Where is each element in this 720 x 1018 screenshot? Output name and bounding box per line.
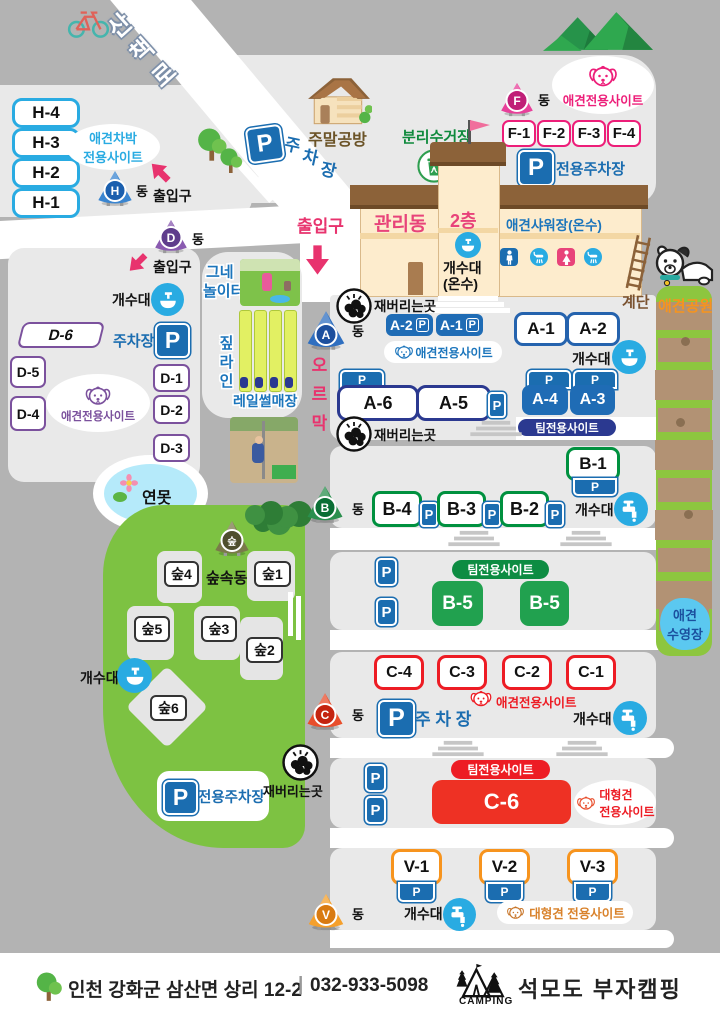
site-box-c4: C-4 <box>374 655 424 690</box>
forest-dong-letter: 숲 <box>221 529 244 552</box>
d-sink-label: 개수대 <box>112 290 151 310</box>
main-entrance-label: 출입구 <box>297 212 344 237</box>
site-box-forest4: 숲4 <box>164 561 199 587</box>
b-dong-letter: B <box>314 496 337 519</box>
site-box-f1: F-1 <box>502 120 536 147</box>
building-door <box>408 262 423 295</box>
b-dong-label: 동 <box>352 499 364 518</box>
site-box-f2: F-2 <box>537 120 571 147</box>
f-type-oval: 애견전용사이트 <box>552 56 654 114</box>
d-dong-label: 동 <box>192 229 204 248</box>
parking-tab-b1: P <box>573 478 617 496</box>
v-dong-letter: V <box>315 903 338 926</box>
a-dong-label: 동 <box>352 321 364 340</box>
shower-icon <box>530 248 548 266</box>
site-box-a5: A-5 <box>416 385 491 421</box>
dogpark-dirt-spot <box>684 510 693 519</box>
v-largedog-pill: 대형견 전용사이트 <box>497 901 633 924</box>
parking-tab-v2: P <box>486 882 523 902</box>
c-parking-label: 주 차 장 <box>415 705 471 730</box>
flag-icon <box>470 120 490 132</box>
a-type-pill: 애견전용사이트 <box>384 341 502 363</box>
parking-icon-c6b: P <box>365 796 386 824</box>
a-team-pill: 팀전용사이트 <box>518 419 616 436</box>
parking-tab-v1: P <box>398 882 435 902</box>
h-dong-letter: H <box>104 179 127 202</box>
site-box-d4: D-4 <box>10 396 46 431</box>
site-label: A-3 <box>580 391 606 409</box>
dog-character-icon <box>652 243 716 291</box>
a-type-label: 애견전용사이트 <box>415 344 492 361</box>
restroom-male-icon <box>500 248 518 266</box>
b-team-pill: 팀전용사이트 <box>452 560 549 579</box>
dog-pool-line2: 수영장 <box>667 624 703 643</box>
c-dong-label: 동 <box>352 705 364 724</box>
parking-icon-b5a: P <box>376 558 397 586</box>
stairs-label: 계단 <box>622 291 650 312</box>
rail-sled-cart <box>270 377 278 388</box>
uphill-label: 오르막 <box>305 356 330 443</box>
dog-icon <box>393 343 415 361</box>
parking-mini: P <box>466 318 479 332</box>
a-dong-letter: A <box>315 323 338 346</box>
sink-icon <box>455 232 481 258</box>
ash-disposal-label: 재버리는곳 <box>263 781 323 800</box>
forest-dong-name: 숲속동 <box>206 567 247 588</box>
forest-sink-label: 개수대 <box>80 668 119 688</box>
rail-sled-cart <box>255 377 263 388</box>
parking-icon-forest: P <box>163 780 198 815</box>
parking-mini: P <box>416 318 429 332</box>
stairs-graphic <box>470 419 522 438</box>
dog-icon <box>83 383 113 408</box>
workshop-house-icon <box>306 76 372 128</box>
roadside-tree-icon <box>218 146 244 176</box>
photo-mat <box>272 465 296 479</box>
d-dong-letter: D <box>160 226 183 249</box>
parking-icon-f: P <box>518 150 554 186</box>
site-label: A-1 <box>440 317 463 333</box>
h-dong-label: 동 <box>136 181 148 200</box>
photo-swing-playground <box>240 259 300 306</box>
parking-icon-c: P <box>378 700 415 737</box>
main-entrance-arrow-icon <box>305 240 330 280</box>
h-entrance-label: 출입구 <box>153 186 192 206</box>
v-sink-label: 개수대 <box>404 904 443 924</box>
camping-logo-text: CAMPING <box>459 996 513 1007</box>
road-band-b5 <box>330 630 674 650</box>
a-dong-marker: A <box>304 310 348 351</box>
f-parking-label: 전용주차장 <box>556 158 625 179</box>
c6-largedog-oval: 대형견 전용사이트 <box>574 780 656 825</box>
site-label: B-5 <box>442 593 473 615</box>
shower-icon <box>584 248 602 266</box>
a-sink-label: 개수대 <box>572 349 611 369</box>
site-box-d1: D-1 <box>153 364 190 392</box>
site-box-a2-small: A-2 P <box>386 314 433 336</box>
f-dong-letter: F <box>506 89 529 112</box>
photo-pool <box>270 295 290 303</box>
site-box-d2: D-2 <box>153 395 190 424</box>
footer-address: 인천 강화군 삼산면 상리 12-2 <box>68 975 302 1002</box>
ash-disposal-label: 재버리는곳 <box>374 295 436 315</box>
d-dong-marker: D <box>152 219 190 254</box>
building-steps <box>432 302 504 307</box>
faucet-icon <box>443 898 476 931</box>
site-box-c6: C-6 <box>432 780 571 824</box>
b-dong-marker: B <box>304 485 346 524</box>
c6-largedog-line2: 전용사이트 <box>599 803 654 820</box>
footer-tree-icon <box>34 970 64 1004</box>
parking-icon-a5: P <box>488 392 506 418</box>
pond-label: 연못 <box>142 484 171 508</box>
site-box-b3: B-3 <box>437 491 486 527</box>
photo-sky <box>240 259 300 271</box>
dog-icon <box>586 62 620 90</box>
parking-tab-v3: P <box>574 882 611 902</box>
site-label: A-2 <box>390 317 413 333</box>
lilypad-icon <box>113 492 127 502</box>
road-band-c6 <box>330 828 674 848</box>
site-box-b1: B-1 <box>566 447 620 481</box>
b-sink-label: 개수대 <box>575 500 614 520</box>
site-box-d6: D-6 <box>17 322 105 348</box>
ash-disposal-icon <box>282 744 319 781</box>
forest-parking-label: 전용주차장 <box>198 786 265 807</box>
site-label: A-4 <box>532 391 558 409</box>
site-label: B-5 <box>529 593 560 615</box>
site-box-v1: V-1 <box>391 849 442 885</box>
road-band-b <box>330 528 674 550</box>
parking-icon-b3: P <box>483 502 501 527</box>
forest-rail <box>296 596 301 640</box>
site-box-a3: A-3 <box>570 385 615 415</box>
d-type-oval: 애견전용사이트 <box>46 374 150 432</box>
sink-icon <box>117 658 152 693</box>
dog-icon <box>505 904 526 921</box>
dog-icon <box>575 794 597 812</box>
f-type-label: 애견전용사이트 <box>563 90 644 109</box>
forest-dong-marker: 숲 <box>212 520 252 557</box>
photo-zipline <box>230 417 298 483</box>
stairs-graphic <box>448 529 500 548</box>
flower-icon <box>120 474 138 492</box>
site-box-forest3: 숲3 <box>201 616 237 642</box>
d-type-label: 애견전용사이트 <box>61 408 135 424</box>
site-label: C-6 <box>484 789 519 815</box>
parking-icon-c6a: P <box>365 764 386 792</box>
building-name: 관리동 <box>374 209 426 236</box>
building-steps <box>438 296 498 301</box>
site-box-f3: F-3 <box>572 120 606 147</box>
road-band-c <box>330 738 674 758</box>
stairs-graphic <box>556 739 608 758</box>
site-box-forest5: 숲5 <box>134 616 170 642</box>
footer-phone: 032-933-5098 <box>310 975 428 997</box>
stairs-graphic <box>560 529 612 548</box>
parking-icon-b4: P <box>420 502 438 527</box>
footer-site-name: 석모도 부자캠핑 <box>518 972 682 1004</box>
parking-icon-top: P <box>245 124 286 165</box>
site-box-c3: C-3 <box>437 655 487 690</box>
swing-label-line1: 그네 <box>206 261 234 282</box>
rail-sled-cart <box>240 377 248 388</box>
parking-icon-b5b: P <box>376 598 397 626</box>
c-type-label: 애견전용사이트 <box>496 692 577 711</box>
building-sink-line2: (온수) <box>443 274 478 294</box>
building-shower-label: 애견샤워장(온수) <box>506 214 602 234</box>
site-box-b5-left: B-5 <box>432 581 483 626</box>
c-team-pill: 팀전용사이트 <box>451 760 550 779</box>
parking-icon-b2: P <box>546 502 564 527</box>
swing-label-line2: 놀이터 <box>203 280 244 301</box>
h-type-line2: 전용사이트 <box>83 147 143 166</box>
site-box-h1: H-1 <box>12 188 80 218</box>
sink-icon <box>612 340 646 374</box>
h-type-oval: 애견차박 전용사이트 <box>66 124 160 170</box>
site-box-b4: B-4 <box>372 491 422 527</box>
building-roof-right <box>488 185 648 209</box>
faucet-icon <box>613 701 647 735</box>
c-sink-label: 개수대 <box>573 709 612 729</box>
photo-kid <box>252 443 264 463</box>
parking-icon-d: P <box>155 323 190 358</box>
c6-largedog-line1: 대형견 <box>599 786 632 803</box>
dogpark-dirt-spot <box>681 337 690 346</box>
site-box-forest2: 숲2 <box>246 637 283 663</box>
v-largedog-label: 대형견 전용사이트 <box>529 903 624 922</box>
camping-logo-icon <box>456 962 510 1000</box>
zipline-label: 짚라인 <box>215 335 236 392</box>
site-box-d3: D-3 <box>153 434 190 462</box>
mountains-icon <box>543 9 657 52</box>
dog-pool: 애견 수영장 <box>660 598 710 650</box>
site-box-forest1: 숲1 <box>254 561 291 587</box>
site-box-a1: A-1 <box>514 312 568 346</box>
v-dong-label: 동 <box>352 904 364 923</box>
site-box-v2: V-2 <box>479 849 530 885</box>
photo-kid-head <box>255 436 263 444</box>
restroom-female-icon <box>557 248 575 266</box>
site-box-c1: C-1 <box>566 655 616 690</box>
building-roof-left <box>350 185 450 209</box>
forest-rail <box>288 592 293 636</box>
rail-sled-cart <box>285 377 293 388</box>
site-box-a2: A-2 <box>566 312 620 346</box>
dogpark-dirt-spot <box>676 418 685 427</box>
footer-divider: | <box>298 974 303 996</box>
site-box-c2: C-2 <box>502 655 552 690</box>
photo-figure <box>262 273 272 291</box>
site-box-d5: D-5 <box>10 356 46 388</box>
c-dong-letter: C <box>314 703 337 726</box>
d-parking-label: 주차장 <box>113 330 154 351</box>
site-box-h2: H-2 <box>12 158 80 188</box>
rail-sled-label: 레일썰매장 <box>233 391 297 411</box>
ash-disposal-icon <box>336 416 372 452</box>
dog-icon <box>468 688 494 709</box>
faucet-icon <box>614 492 648 526</box>
v-dong-marker: V <box>305 893 347 931</box>
f-dong-marker: F <box>498 82 536 117</box>
h-type-line1: 애견차박 <box>89 128 137 147</box>
sink-icon <box>151 283 184 316</box>
building-tower-roof <box>430 142 506 166</box>
building-steps <box>426 308 510 313</box>
site-box-v3: V-3 <box>567 849 618 885</box>
photo-figure <box>284 281 291 291</box>
building-floor: 2층 <box>450 207 477 233</box>
site-box-f4: F-4 <box>607 120 641 147</box>
site-box-b2: B-2 <box>500 491 549 527</box>
f-dong-label: 동 <box>538 90 550 109</box>
site-box-a1-small: A-1 P <box>436 314 483 336</box>
site-box-b5-right: B-5 <box>520 581 569 626</box>
dog-pool-line1: 애견 <box>673 605 697 624</box>
stairs-graphic <box>432 739 484 758</box>
dogpark-label: 애견공원 <box>658 295 713 316</box>
site-box-forest6: 숲6 <box>150 695 187 721</box>
h-dong-marker: H <box>95 170 135 207</box>
ash-disposal-label: 재버리는곳 <box>374 424 436 444</box>
site-box-h4: H-4 <box>12 98 80 128</box>
d-entrance-label: 출입구 <box>153 257 192 277</box>
c-dong-marker: C <box>304 692 346 731</box>
road-band-v <box>330 930 674 948</box>
site-box-a4: A-4 <box>522 385 568 415</box>
